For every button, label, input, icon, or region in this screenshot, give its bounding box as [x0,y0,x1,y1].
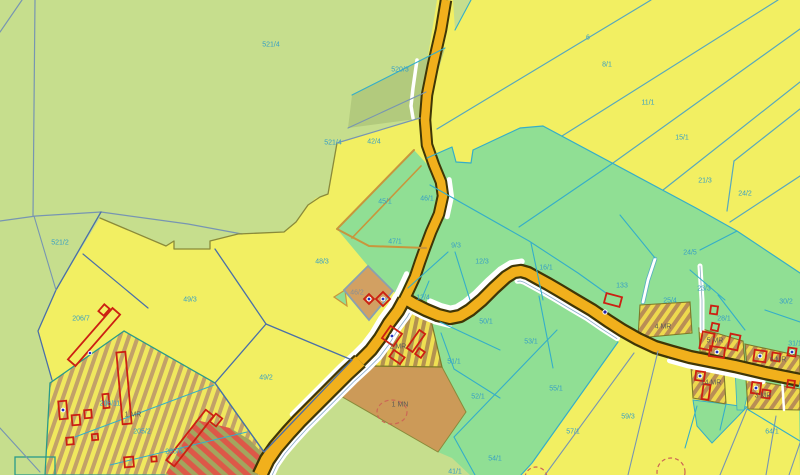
svg-text:55/1: 55/1 [549,386,563,393]
svg-text:205/2: 205/2 [133,429,151,436]
svg-text:205/6: 205/6 [165,449,183,456]
svg-text:25/4: 25/4 [663,298,677,305]
svg-text:59/3: 59/3 [621,414,635,421]
svg-text:12/4: 12/4 [416,295,430,302]
svg-text:57/1: 57/1 [566,429,580,436]
svg-text:50/1: 50/1 [479,319,493,326]
svg-text:46/2: 46/2 [350,290,364,297]
svg-text:49/3: 49/3 [183,297,197,304]
svg-text:2 MR: 2 MR [390,344,407,351]
svg-text:24/5: 24/5 [683,250,697,257]
svg-text:133: 133 [616,283,628,290]
svg-text:4 MR: 4 MR [655,324,672,331]
svg-text:521/4: 521/4 [262,42,280,49]
svg-text:24/2: 24/2 [738,191,752,198]
svg-text:23/3: 23/3 [697,286,711,293]
svg-text:31/1: 31/1 [788,341,800,348]
svg-text:41/1: 41/1 [448,469,462,475]
svg-text:64/1: 64/1 [765,429,779,436]
svg-text:46/1: 46/1 [420,196,434,203]
svg-text:9/3: 9/3 [451,243,461,250]
svg-text:14 MR: 14 MR [701,380,722,387]
svg-text:8/1: 8/1 [602,62,612,69]
svg-text:28/1: 28/1 [717,316,731,323]
svg-text:52/1: 52/1 [471,394,485,401]
svg-text:51/1: 51/1 [447,359,461,366]
svg-text:5 MR: 5 MR [707,338,724,345]
svg-text:1 MN: 1 MN [392,402,409,409]
svg-text:3 MR: 3 MR [755,393,772,400]
svg-text:54/1: 54/1 [488,456,502,463]
svg-text:49/2: 49/2 [259,375,273,382]
svg-text:30/2: 30/2 [779,299,793,306]
svg-text:1 MR: 1 MR [125,412,142,419]
svg-text:21/3: 21/3 [698,178,712,185]
svg-text:48/3: 48/3 [315,259,329,266]
svg-text:16/1: 16/1 [539,265,553,272]
svg-text:520/3: 520/3 [391,67,409,74]
svg-text:6: 6 [586,35,590,42]
svg-text:45/1: 45/1 [378,199,392,206]
svg-text:53/1: 53/1 [524,339,538,346]
svg-text:206/11: 206/11 [100,401,121,408]
svg-text:42/4: 42/4 [367,139,381,146]
svg-text:12/3: 12/3 [475,259,489,266]
svg-text:521/4: 521/4 [324,140,342,147]
svg-text:206/7: 206/7 [72,316,90,323]
svg-text:47/1: 47/1 [388,239,402,246]
svg-text:15/1: 15/1 [675,135,689,142]
svg-text:11/1: 11/1 [641,100,654,107]
svg-text:6 MR: 6 MR [770,357,787,364]
svg-text:521/2: 521/2 [51,240,69,247]
